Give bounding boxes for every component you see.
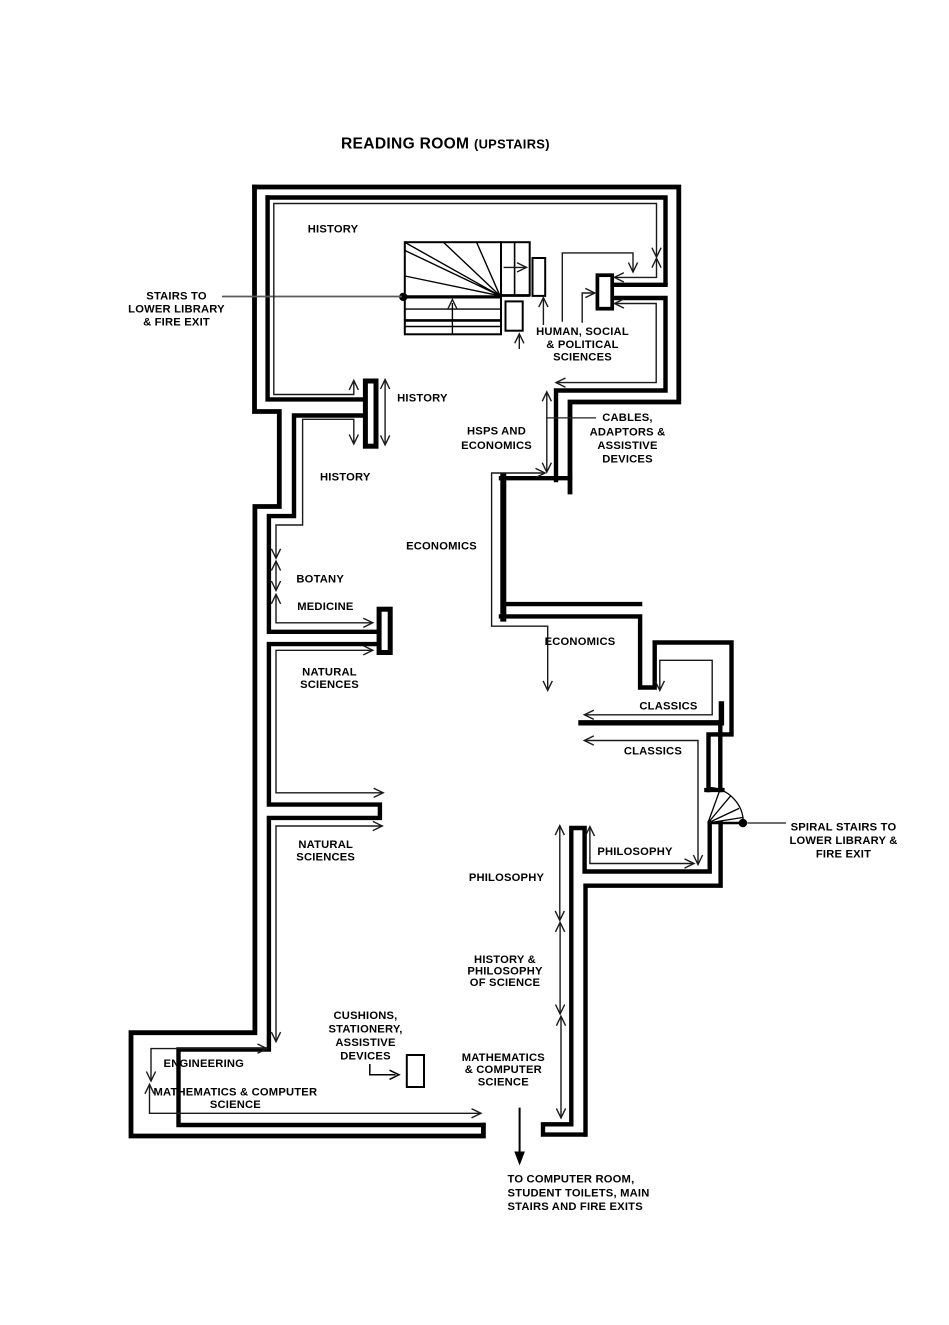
svg-text:CLASSICS: CLASSICS (624, 746, 683, 758)
svg-text:ECONOMICS: ECONOMICS (545, 636, 616, 648)
svg-text:MEDICINE: MEDICINE (297, 601, 354, 613)
svg-text:ENGINEERING: ENGINEERING (164, 1058, 245, 1070)
svg-text:HISTORY &PHILOSOPHYOF SCIENCE: HISTORY &PHILOSOPHYOF SCIENCE (467, 954, 543, 989)
svg-text:PHILOSOPHY: PHILOSOPHY (597, 846, 673, 858)
svg-text:HISTORY: HISTORY (308, 223, 359, 235)
svg-text:CLASSICS: CLASSICS (639, 701, 698, 713)
svg-text:READING ROOM (UPSTAIRS): READING ROOM (UPSTAIRS) (341, 136, 550, 153)
svg-text:NATURALSCIENCES: NATURALSCIENCES (300, 667, 359, 691)
svg-text:HISTORY: HISTORY (320, 472, 371, 484)
svg-text:ECONOMICS: ECONOMICS (406, 540, 477, 552)
svg-text:NATURALSCIENCES: NATURALSCIENCES (296, 839, 355, 864)
svg-text:TO COMPUTER ROOM,STUDENT TOILE: TO COMPUTER ROOM,STUDENT TOILETS, MAINST… (508, 1174, 650, 1213)
svg-text:BOTANY: BOTANY (296, 574, 344, 586)
svg-text:PHILOSOPHY: PHILOSOPHY (469, 872, 545, 884)
svg-text:HISTORY: HISTORY (397, 393, 448, 405)
